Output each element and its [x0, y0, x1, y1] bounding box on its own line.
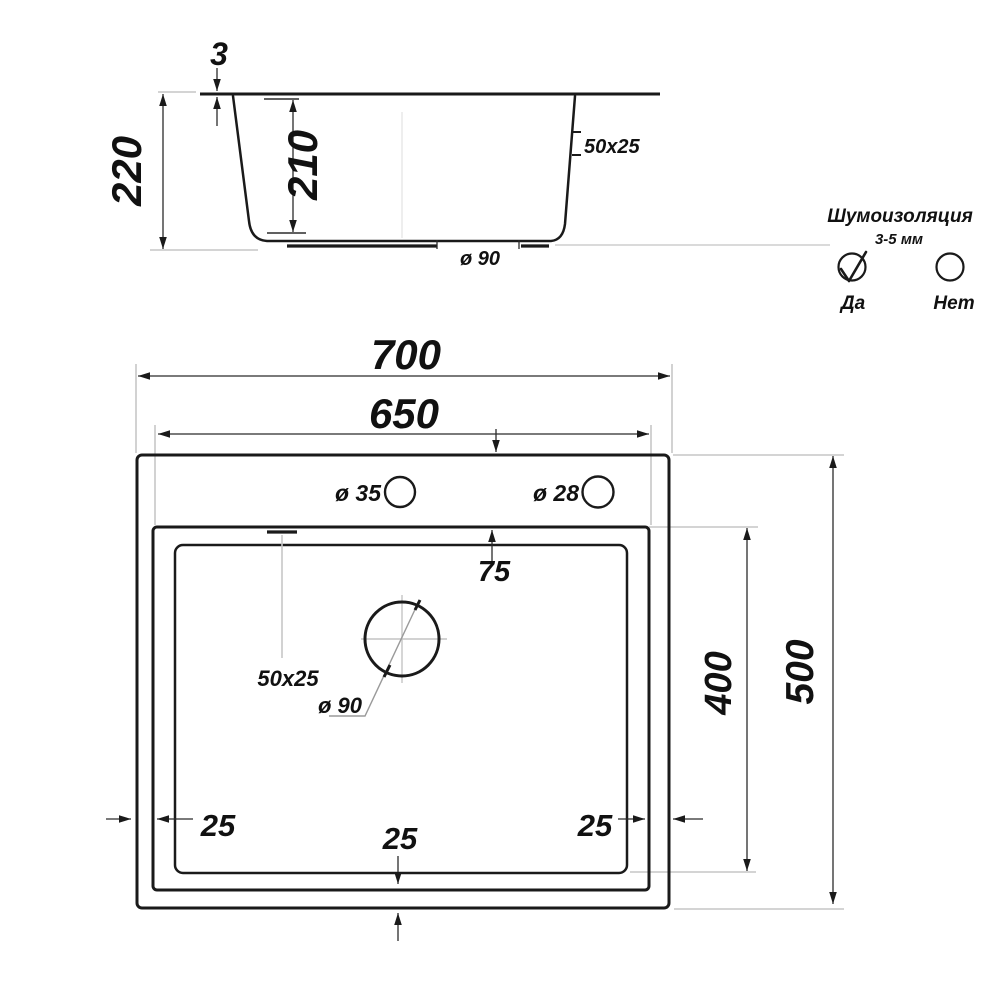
- dispenser-hole: [583, 477, 614, 508]
- depth-label: 210: [279, 130, 326, 201]
- top-view: ø 35 ø 28 50x25 ø 90 700 650 75 400 500: [106, 331, 844, 941]
- side-drain-label: ø 90: [460, 248, 500, 270]
- outer-depth-label: 500: [779, 639, 822, 704]
- drawing-canvas: 3 220 210 50x25 ø 90 Шумоизоляция 3-5 мм…: [0, 0, 1000, 1000]
- deck-offset-label: 75: [478, 556, 511, 588]
- insulation-title: Шумоизоляция: [827, 206, 973, 227]
- bowl-width-label: 650: [369, 390, 439, 437]
- side-view: 3 220 210 50x25 ø 90: [103, 36, 830, 270]
- faucet-hole: [385, 477, 415, 507]
- no-circle: [937, 254, 964, 281]
- gap-left-label: 25: [200, 808, 236, 843]
- bowl-length-label: 400: [698, 651, 740, 715]
- no-label: Нет: [933, 293, 974, 314]
- height-label: 220: [103, 136, 150, 207]
- insulation-legend: Шумоизоляция 3-5 мм Да Нет: [827, 206, 974, 314]
- sink-dimension-drawing: 3 220 210 50x25 ø 90 Шумоизоляция 3-5 мм…: [0, 0, 1000, 1000]
- dispenser-hole-label: ø 28: [533, 480, 579, 506]
- gap-bottom-label: 25: [382, 821, 418, 856]
- gap-right-label: 25: [577, 808, 613, 843]
- yes-label: Да: [839, 293, 866, 314]
- faucet-hole-label: ø 35: [335, 480, 382, 506]
- side-overflow-label: 50x25: [584, 136, 640, 158]
- top-drain-label: ø 90: [318, 693, 363, 718]
- top-overflow-label: 50x25: [257, 666, 319, 691]
- outer-width-label: 700: [371, 331, 441, 378]
- insulation-range: 3-5 мм: [875, 231, 923, 248]
- rim-thickness-label: 3: [210, 36, 228, 72]
